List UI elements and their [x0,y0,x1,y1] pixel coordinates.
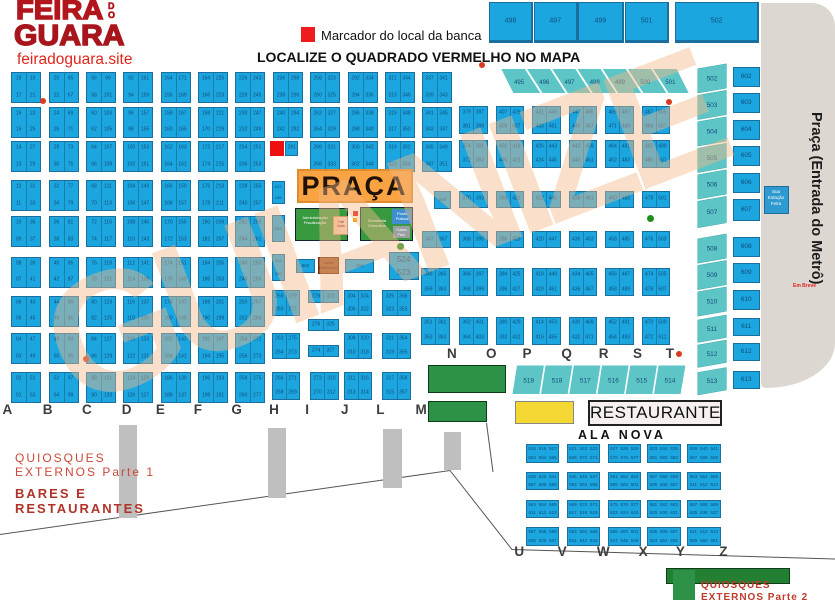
svg-text:512: 512 [707,351,718,358]
svg-text:518: 518 [552,378,563,385]
svg-text:513: 513 [707,378,718,385]
svg-text:510: 510 [707,299,718,306]
svg-text:508: 508 [707,246,718,253]
svg-text:515: 515 [636,378,647,385]
svg-text:519: 519 [523,378,534,385]
svg-text:509: 509 [707,272,718,279]
svg-text:514: 514 [664,378,675,385]
svg-text:516: 516 [608,378,619,385]
svg-text:517: 517 [580,378,591,385]
svg-text:507: 507 [707,209,718,216]
svg-text:511: 511 [707,326,718,333]
